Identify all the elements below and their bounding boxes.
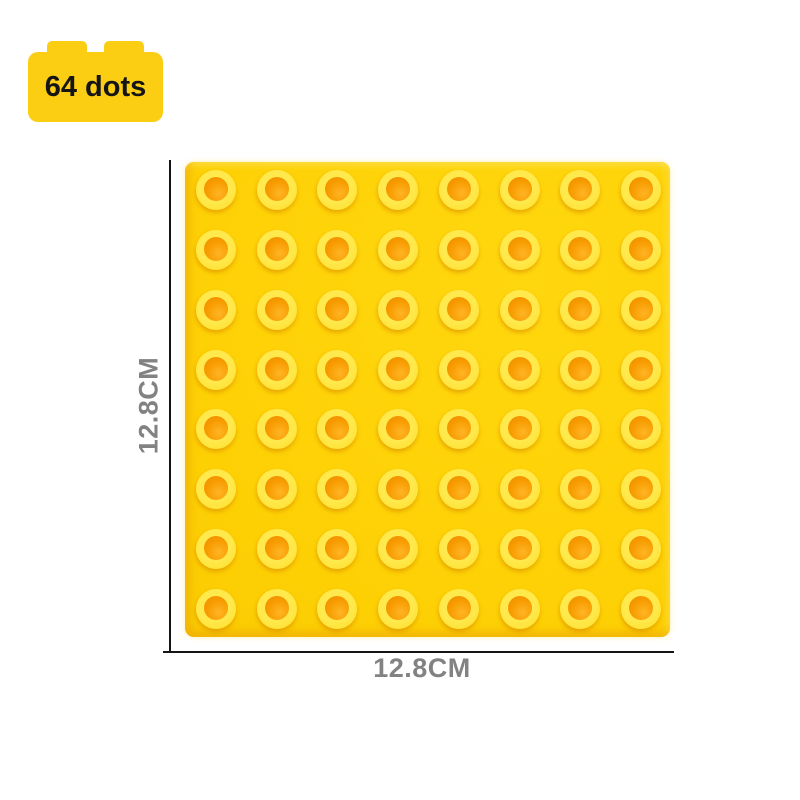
stud (257, 589, 297, 629)
stud-hole (447, 416, 471, 440)
stud (560, 350, 600, 390)
stud-hole (568, 476, 592, 500)
stud-hole (568, 596, 592, 620)
stud-hole (508, 536, 532, 560)
height-dimension-line (169, 160, 171, 652)
stud (378, 290, 418, 330)
stud (257, 290, 297, 330)
height-dimension-label: 12.8CM (134, 346, 165, 466)
stud (621, 230, 661, 270)
stud-hole (447, 237, 471, 261)
stud-hole (386, 297, 410, 321)
stud-hole (325, 536, 349, 560)
stud (560, 409, 600, 449)
stud (439, 170, 479, 210)
width-dimension-label: 12.8CM (342, 653, 502, 684)
stud (378, 529, 418, 569)
stud (317, 529, 357, 569)
stud-hole (204, 416, 228, 440)
stud (317, 469, 357, 509)
stud (317, 230, 357, 270)
stud-hole (386, 596, 410, 620)
stud (621, 529, 661, 569)
stud-hole (204, 237, 228, 261)
badge-body: 64 dots (28, 52, 163, 122)
stud (500, 230, 540, 270)
stud (196, 170, 236, 210)
stud-hole (629, 357, 653, 381)
stud-hole (629, 596, 653, 620)
stud (439, 350, 479, 390)
stud-hole (568, 177, 592, 201)
stud-hole (386, 237, 410, 261)
stud-hole (508, 476, 532, 500)
stud-hole (568, 416, 592, 440)
stud-hole (386, 416, 410, 440)
stud-hole (447, 297, 471, 321)
stud-hole (265, 476, 289, 500)
stud-hole (204, 536, 228, 560)
stud (439, 469, 479, 509)
stud-hole (447, 596, 471, 620)
stud (196, 230, 236, 270)
stud (196, 469, 236, 509)
stud-hole (386, 177, 410, 201)
stud (257, 170, 297, 210)
stud-hole (508, 596, 532, 620)
stud-hole (204, 177, 228, 201)
stud (500, 469, 540, 509)
stud-hole (386, 476, 410, 500)
stud-hole (508, 237, 532, 261)
stud-hole (447, 476, 471, 500)
stud-hole (265, 596, 289, 620)
product-image: 64 dots 12.8CM 12.8CM (0, 0, 800, 800)
stud (500, 589, 540, 629)
stud (257, 409, 297, 449)
baseplate (185, 162, 670, 637)
stud (317, 290, 357, 330)
stud (560, 230, 600, 270)
stud (317, 409, 357, 449)
stud (257, 469, 297, 509)
stud (560, 170, 600, 210)
stud (378, 409, 418, 449)
stud-hole (568, 536, 592, 560)
stud (257, 350, 297, 390)
stud-hole (629, 416, 653, 440)
stud-hole (629, 297, 653, 321)
stud (196, 589, 236, 629)
stud-hole (325, 297, 349, 321)
stud (500, 409, 540, 449)
dots-count-badge: 64 dots (28, 41, 163, 122)
stud-hole (447, 357, 471, 381)
stud (560, 469, 600, 509)
stud (621, 170, 661, 210)
stud (196, 409, 236, 449)
stud-hole (629, 177, 653, 201)
stud (560, 290, 600, 330)
stud-hole (325, 357, 349, 381)
stud-hole (265, 177, 289, 201)
stud-hole (265, 416, 289, 440)
stud (621, 589, 661, 629)
stud (621, 350, 661, 390)
stud-hole (325, 177, 349, 201)
stud (317, 589, 357, 629)
stud-hole (508, 357, 532, 381)
stud-hole (568, 357, 592, 381)
stud-hole (204, 297, 228, 321)
stud (560, 589, 600, 629)
stud (439, 230, 479, 270)
stud (196, 290, 236, 330)
stud (317, 350, 357, 390)
stud-hole (508, 177, 532, 201)
stud (500, 290, 540, 330)
stud-hole (325, 476, 349, 500)
stud-hole (447, 177, 471, 201)
badge-label: 64 dots (45, 71, 147, 104)
stud (560, 529, 600, 569)
stud-hole (204, 476, 228, 500)
stud-hole (325, 596, 349, 620)
stud (378, 170, 418, 210)
stud (439, 409, 479, 449)
stud (621, 290, 661, 330)
stud-hole (265, 237, 289, 261)
stud (621, 469, 661, 509)
stud-hole (508, 297, 532, 321)
stud-hole (386, 357, 410, 381)
stud-hole (265, 297, 289, 321)
stud (500, 170, 540, 210)
stud-hole (568, 237, 592, 261)
stud-hole (568, 297, 592, 321)
stud-hole (204, 357, 228, 381)
stud (378, 230, 418, 270)
stud (196, 529, 236, 569)
stud-hole (325, 416, 349, 440)
stud-hole (629, 476, 653, 500)
stud-hole (265, 357, 289, 381)
stud (439, 290, 479, 330)
stud-hole (204, 596, 228, 620)
stud (439, 589, 479, 629)
stud-hole (629, 237, 653, 261)
stud (378, 469, 418, 509)
stud (621, 409, 661, 449)
stud (378, 350, 418, 390)
stud-hole (265, 536, 289, 560)
stud (317, 170, 357, 210)
stud-hole (447, 536, 471, 560)
stud (500, 350, 540, 390)
stud (196, 350, 236, 390)
stud-hole (508, 416, 532, 440)
stud (257, 230, 297, 270)
stud-hole (629, 536, 653, 560)
stud-hole (386, 536, 410, 560)
stud-hole (325, 237, 349, 261)
stud (439, 529, 479, 569)
stud (500, 529, 540, 569)
stud (378, 589, 418, 629)
stud (257, 529, 297, 569)
